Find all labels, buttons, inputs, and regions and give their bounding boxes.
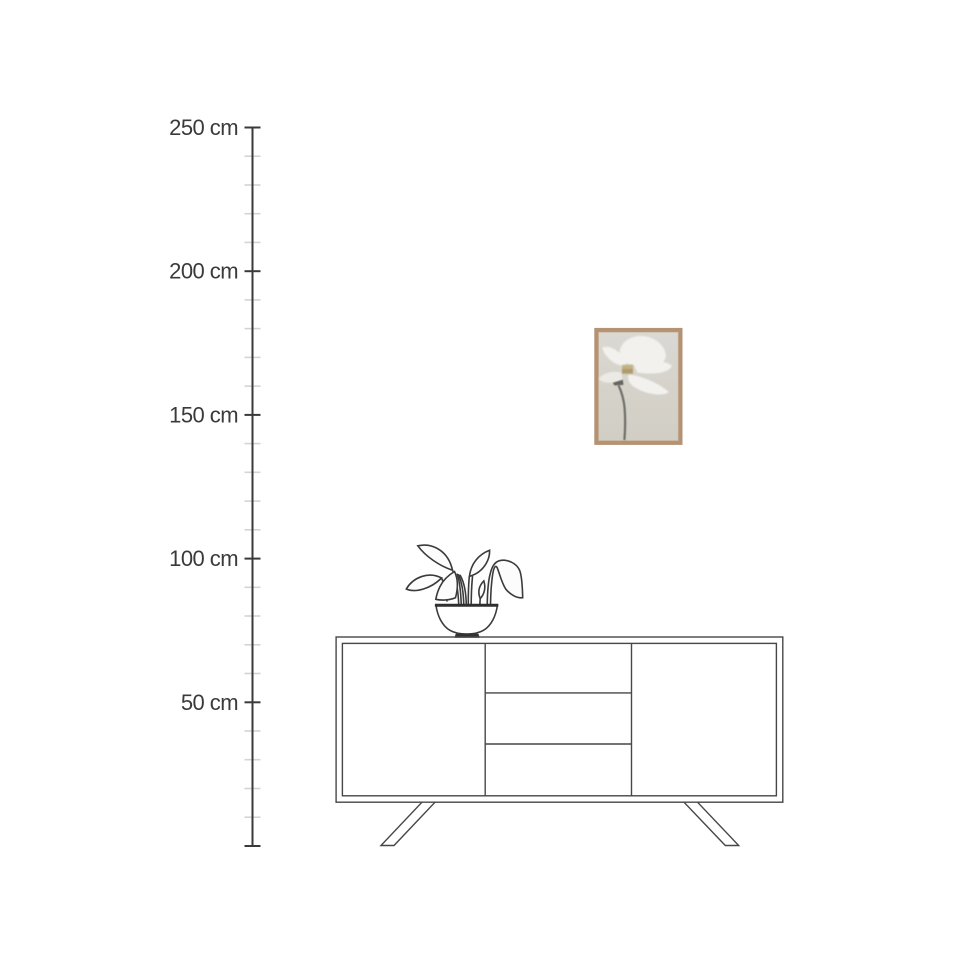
svg-text:150 cm: 150 cm xyxy=(169,402,238,427)
svg-text:200 cm: 200 cm xyxy=(169,259,238,284)
svg-text:50 cm: 50 cm xyxy=(181,690,238,715)
svg-text:100 cm: 100 cm xyxy=(169,546,238,571)
svg-text:250 cm: 250 cm xyxy=(169,115,238,140)
